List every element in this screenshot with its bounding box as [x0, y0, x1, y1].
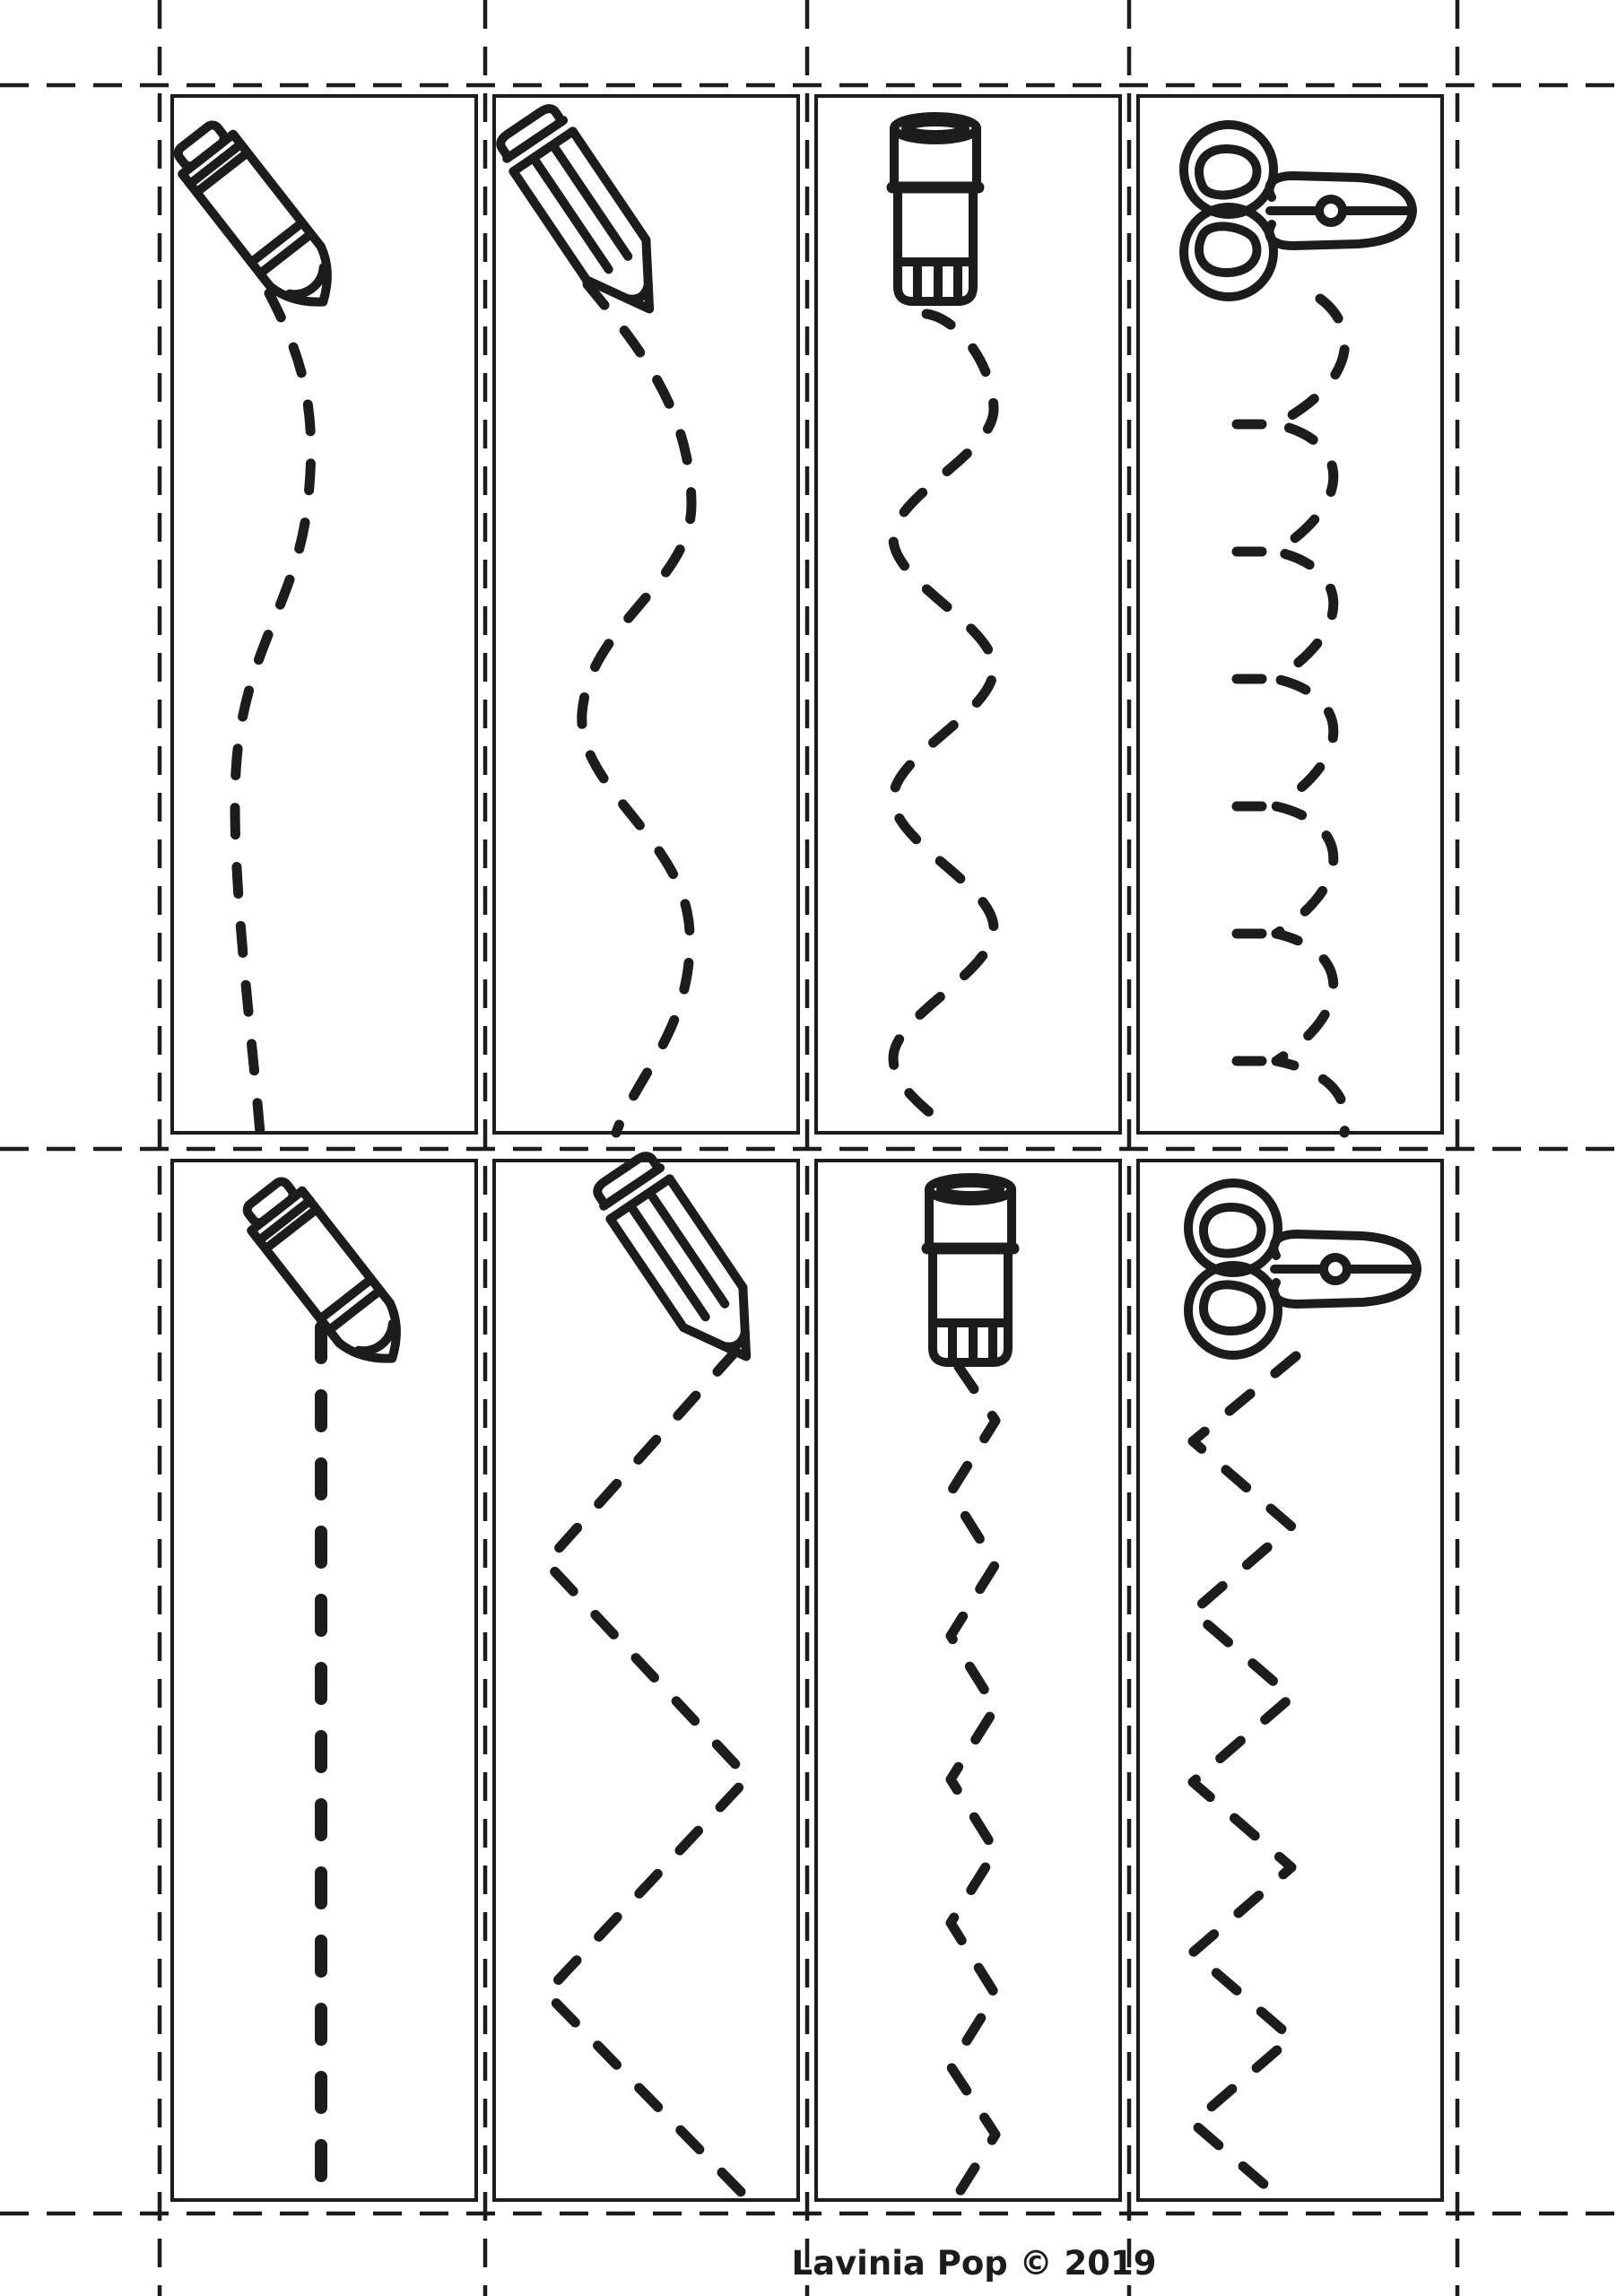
panel-5-crayon: [172, 1161, 476, 2200]
panel-1-crayon: [169, 96, 476, 1133]
tracing-line-gentle-curve: [235, 293, 311, 1133]
crayon-icon: [169, 117, 348, 322]
pencil-icon: [591, 1151, 776, 1377]
glue-stick-icon: [892, 117, 978, 301]
pencil-icon: [494, 103, 679, 329]
crayon-icon: [238, 1174, 417, 1378]
glue-stick-icon: [927, 1178, 1013, 1362]
scissors-icon: [1188, 1183, 1417, 1355]
panel-2-pencil: [494, 96, 798, 1133]
panel-8-scissors: [1138, 1161, 1442, 2202]
tracing-line-zigzag-small: [951, 1367, 995, 2202]
scissors-icon: [1184, 125, 1413, 297]
panel-7-glue-stick: [816, 1161, 1120, 2202]
panel-6-pencil: [494, 1151, 798, 2202]
worksheet-art: [0, 0, 1617, 2296]
tracing-line-scallop: [1276, 299, 1345, 1133]
panel-4-scissors: [1138, 96, 1442, 1133]
panel-border: [1138, 1161, 1442, 2200]
tracing-line-s-curve: [582, 284, 691, 1133]
panel-3-glue-stick: [816, 96, 1120, 1133]
credit-text: Lavinia Pop © 2019: [792, 2244, 1157, 2283]
tracing-line-tight-wave: [893, 314, 994, 1133]
tracing-line-zigzag-large: [546, 1352, 751, 2202]
worksheet-page: Lavinia Pop © 2019: [0, 0, 1617, 2296]
panel-border: [494, 1161, 798, 2200]
tracing-line-zigzag-medium: [1193, 1356, 1296, 2202]
cut-lines: [0, 0, 1617, 2296]
